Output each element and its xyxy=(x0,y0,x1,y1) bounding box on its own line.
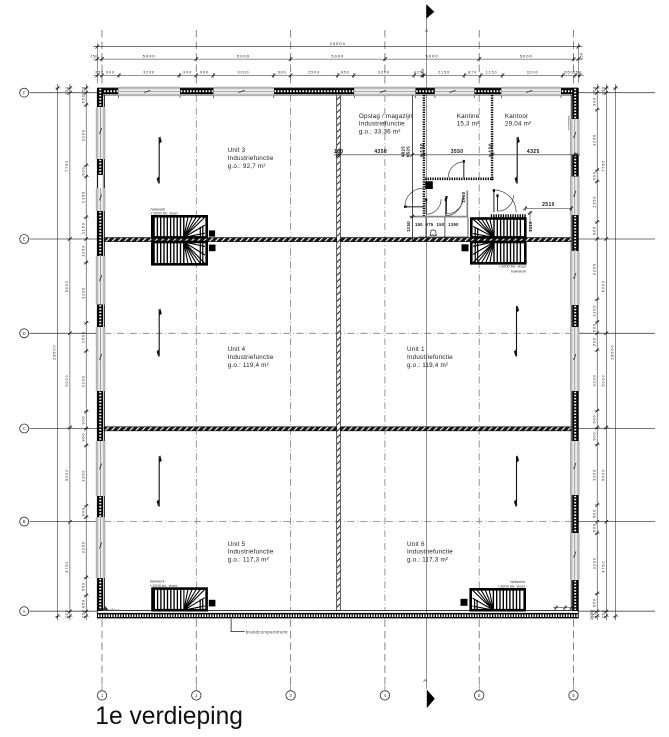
svg-text:250: 250 xyxy=(90,55,97,59)
svg-text:D: D xyxy=(23,331,26,336)
svg-text:3200: 3200 xyxy=(81,375,85,387)
svg-text:3200: 3200 xyxy=(593,374,597,386)
svg-text:900: 900 xyxy=(81,416,85,425)
svg-text:1e verdieping: 1e verdieping xyxy=(95,703,243,730)
svg-text:15,3 m²: 15,3 m² xyxy=(457,121,480,128)
svg-text:900: 900 xyxy=(593,509,597,518)
svg-text:1500: 1500 xyxy=(81,331,85,343)
svg-text:3200: 3200 xyxy=(527,71,539,75)
svg-text:1950: 1950 xyxy=(461,191,466,202)
svg-text:g.o.: 33,36 m²: g.o.: 33,36 m² xyxy=(359,129,401,136)
svg-text:900: 900 xyxy=(106,71,115,75)
svg-text:A: A xyxy=(23,609,26,614)
svg-text:1150: 1150 xyxy=(486,71,498,75)
svg-text:2510: 2510 xyxy=(542,202,555,208)
svg-text:900: 900 xyxy=(81,433,85,442)
svg-text:250: 250 xyxy=(580,53,584,60)
svg-text:250: 250 xyxy=(81,609,85,618)
svg-text:brandcompartiment: brandcompartiment xyxy=(246,629,289,634)
svg-text:950: 950 xyxy=(81,582,85,591)
svg-text:850: 850 xyxy=(81,599,85,608)
svg-text:5000: 5000 xyxy=(65,374,69,386)
svg-text:600: 600 xyxy=(593,523,597,532)
svg-text:Industriefunctie: Industriefunctie xyxy=(228,155,274,162)
svg-text:3200: 3200 xyxy=(238,71,250,75)
svg-text:g.o.: 119,4 m²: g.o.: 119,4 m² xyxy=(228,362,269,369)
svg-text:7750: 7750 xyxy=(65,160,69,172)
svg-text:4350: 4350 xyxy=(374,149,387,155)
svg-text:600: 600 xyxy=(593,171,597,180)
svg-text:Unit 6: Unit 6 xyxy=(407,541,425,548)
svg-text:g.o.: 119,4 m²: g.o.: 119,4 m² xyxy=(407,362,448,369)
svg-text:5000: 5000 xyxy=(520,53,533,58)
svg-text:5000: 5000 xyxy=(237,53,250,58)
svg-text:3200: 3200 xyxy=(593,469,597,481)
svg-text:Unit 3: Unit 3 xyxy=(228,147,246,154)
svg-text:5000: 5000 xyxy=(426,53,439,58)
svg-text:150: 150 xyxy=(437,222,445,227)
svg-text:250: 250 xyxy=(590,614,594,620)
svg-text:975: 975 xyxy=(426,222,434,227)
svg-text:≈60 p.b.: ≈60 p.b. xyxy=(111,607,121,611)
svg-text:1200: 1200 xyxy=(593,305,597,317)
svg-text:Industriefunctie: Industriefunctie xyxy=(228,549,274,556)
svg-text:5000: 5000 xyxy=(331,53,344,58)
svg-text:3200: 3200 xyxy=(143,71,155,75)
svg-text:+1000 bk. vloer: +1000 bk. vloer xyxy=(151,211,179,216)
svg-text:250: 250 xyxy=(573,71,582,75)
svg-text:Kantine: Kantine xyxy=(457,113,480,120)
svg-text:900: 900 xyxy=(183,71,192,75)
svg-text:C: C xyxy=(23,426,26,431)
svg-text:150: 150 xyxy=(415,222,423,227)
svg-text:100: 100 xyxy=(334,149,344,155)
svg-text:A: A xyxy=(425,28,428,33)
svg-text:2150: 2150 xyxy=(593,196,597,208)
svg-text:250: 250 xyxy=(602,86,606,95)
svg-text:850: 850 xyxy=(341,71,350,75)
svg-text:Unit 5: Unit 5 xyxy=(228,541,246,548)
svg-text:3200: 3200 xyxy=(81,541,85,553)
svg-text:Opslag / magazijn: Opslag / magazijn xyxy=(359,113,413,120)
svg-text:250: 250 xyxy=(65,609,69,618)
svg-text:250: 250 xyxy=(81,86,85,95)
svg-text:2150: 2150 xyxy=(438,71,450,75)
svg-text:4325: 4325 xyxy=(527,149,540,155)
svg-text:Unit 4: Unit 4 xyxy=(228,346,246,353)
svg-text:1150: 1150 xyxy=(406,221,411,232)
svg-text:3200: 3200 xyxy=(593,263,597,275)
svg-text:+1000 bk, vloer: +1000 bk, vloer xyxy=(498,584,526,589)
svg-text:1115: 1115 xyxy=(528,221,533,232)
svg-text:900: 900 xyxy=(593,226,597,235)
svg-text:4750: 4750 xyxy=(65,560,69,572)
svg-text:250: 250 xyxy=(602,609,606,618)
svg-text:3200: 3200 xyxy=(81,129,85,141)
svg-text:3550: 3550 xyxy=(451,149,464,155)
svg-text:5000: 5000 xyxy=(143,53,156,58)
svg-text:25500: 25500 xyxy=(330,41,346,46)
svg-text:2500: 2500 xyxy=(308,71,320,75)
svg-text:100: 100 xyxy=(420,143,426,153)
svg-text:1250: 1250 xyxy=(81,245,85,257)
svg-text:5000: 5000 xyxy=(602,280,606,292)
svg-text:Industriefunctie: Industriefunctie xyxy=(359,121,405,128)
svg-text:950: 950 xyxy=(593,598,597,607)
svg-text:3200: 3200 xyxy=(593,557,597,569)
svg-text:85: 85 xyxy=(421,68,425,73)
svg-text:28600: 28600 xyxy=(53,344,57,359)
svg-text:28600: 28600 xyxy=(611,344,615,359)
svg-text:g.o.: 92,7 m²: g.o.: 92,7 m² xyxy=(228,163,266,170)
svg-text:6525: 6525 xyxy=(406,146,411,157)
svg-text:voorzetwand: voorzetwand xyxy=(566,115,570,130)
svg-text:hekwerk: hekwerk xyxy=(511,268,526,273)
svg-text:Industriefunctie: Industriefunctie xyxy=(228,354,274,361)
svg-text:900: 900 xyxy=(593,432,597,441)
svg-text:Kantoor: Kantoor xyxy=(505,113,528,120)
svg-text:650: 650 xyxy=(81,94,85,103)
svg-text:4825: 4825 xyxy=(400,146,405,157)
svg-text:100: 100 xyxy=(489,143,495,153)
svg-text:Unit 1: Unit 1 xyxy=(407,346,425,353)
svg-text:950: 950 xyxy=(590,610,594,616)
svg-text:E: E xyxy=(23,237,26,242)
svg-text:3200: 3200 xyxy=(378,71,390,75)
svg-text:1390: 1390 xyxy=(448,222,459,227)
svg-text:250: 250 xyxy=(95,71,104,75)
svg-text:1150: 1150 xyxy=(81,222,85,234)
svg-text:5000: 5000 xyxy=(602,374,606,386)
svg-text:B: B xyxy=(23,519,26,524)
svg-text:+1000 bk. vloer: +1000 bk. vloer xyxy=(150,583,178,588)
svg-text:Industriefunctie: Industriefunctie xyxy=(407,354,453,361)
svg-text:Industriefunctie: Industriefunctie xyxy=(407,549,453,556)
svg-text:g.o.: 117,3 m²: g.o.: 117,3 m² xyxy=(407,557,448,564)
svg-text:250: 250 xyxy=(593,86,597,95)
svg-text:3200: 3200 xyxy=(81,470,85,482)
svg-text:7750: 7750 xyxy=(602,160,606,172)
svg-text:900: 900 xyxy=(593,97,597,106)
svg-text:5000: 5000 xyxy=(602,469,606,481)
svg-text:3200: 3200 xyxy=(593,134,597,146)
svg-text:870: 870 xyxy=(468,71,477,75)
svg-text:600: 600 xyxy=(81,167,85,176)
svg-text:900: 900 xyxy=(593,337,597,346)
svg-text:900: 900 xyxy=(593,415,597,424)
svg-text:29,04 m²: 29,04 m² xyxy=(505,121,531,128)
svg-text:250: 250 xyxy=(65,86,69,95)
svg-text:5000: 5000 xyxy=(65,280,69,292)
svg-text:5000: 5000 xyxy=(65,469,69,481)
svg-text:900: 900 xyxy=(200,71,209,75)
svg-text:3200: 3200 xyxy=(81,287,85,299)
svg-text:600: 600 xyxy=(593,323,597,332)
svg-text:2150: 2150 xyxy=(81,191,85,203)
svg-text:900: 900 xyxy=(278,71,287,75)
svg-text:4750: 4750 xyxy=(602,560,606,572)
svg-text:F: F xyxy=(23,90,26,95)
svg-text:g.o.: 117,3 m²: g.o.: 117,3 m² xyxy=(228,557,269,564)
svg-text:600: 600 xyxy=(81,507,85,516)
